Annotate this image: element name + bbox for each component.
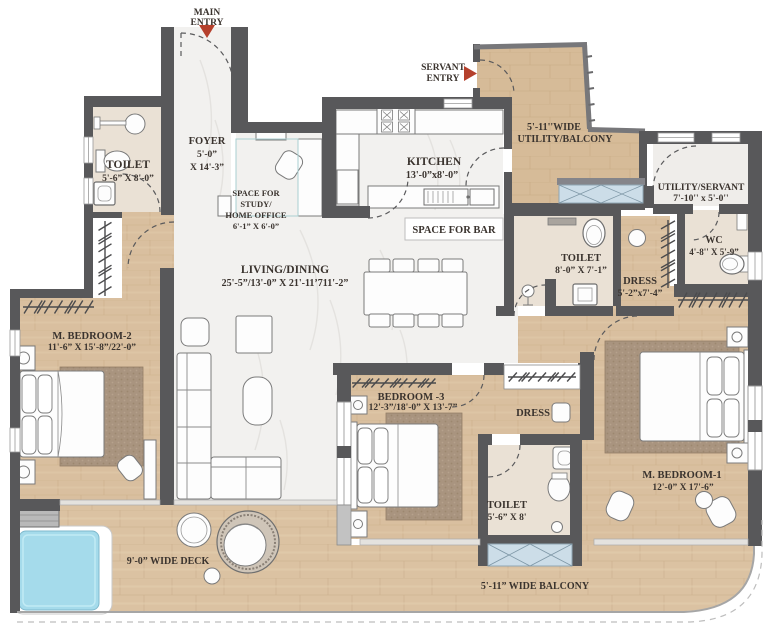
svg-text:5'-0”: 5'-0”	[197, 150, 217, 160]
svg-text:12'-0” X 17'-6”: 12'-0” X 17'-6”	[652, 483, 713, 493]
svg-text:HOME OFFICE: HOME OFFICE	[225, 210, 286, 220]
svg-text:5'-6” X 8'-0”: 5'-6” X 8'-0”	[102, 174, 154, 184]
svg-text:8'-0” X 7'-1”: 8'-0” X 7'-1”	[555, 266, 607, 276]
svg-text:TOILET: TOILET	[561, 253, 601, 264]
svg-text:DRESS: DRESS	[623, 276, 657, 287]
svg-text:MAIN: MAIN	[194, 8, 221, 18]
svg-text:5'-11''WIDE: 5'-11''WIDE	[527, 122, 581, 133]
svg-text:TOILET: TOILET	[106, 159, 150, 171]
svg-text:25'-5”/13'-0” X 21'-11’711'-2”: 25'-5”/13'-0” X 21'-11’711'-2”	[222, 278, 349, 289]
svg-text:ENTRY: ENTRY	[427, 74, 460, 84]
svg-text:5'-6” X 8': 5'-6” X 8'	[487, 513, 526, 523]
svg-text:SPACE FOR: SPACE FOR	[232, 188, 280, 198]
svg-text:TOILET: TOILET	[487, 500, 527, 511]
svg-text:12'-3”/18'-0” X 13'-7”: 12'-3”/18'-0” X 13'-7”	[369, 403, 458, 413]
svg-text:UTILITY/SERVANT: UTILITY/SERVANT	[658, 183, 745, 193]
svg-text:STUDY/: STUDY/	[240, 199, 272, 209]
svg-text:DRESS: DRESS	[516, 408, 550, 419]
svg-text:X 14'-3”: X 14'-3”	[190, 163, 224, 173]
svg-text:6'-1” X 6'-0”: 6'-1” X 6'-0”	[233, 221, 279, 231]
svg-text:KITCHEN: KITCHEN	[407, 156, 462, 168]
svg-text:LIVING/DINING: LIVING/DINING	[241, 264, 329, 276]
svg-text:FOYER: FOYER	[189, 136, 226, 147]
svg-text:7'-10'' x 5'-0'': 7'-10'' x 5'-0''	[673, 194, 728, 204]
svg-text:5'-2”x7'-4”: 5'-2”x7'-4”	[618, 289, 663, 299]
svg-text:UTILITY/BALCONY: UTILITY/BALCONY	[517, 134, 613, 145]
svg-text:13'-0”x8'-0”: 13'-0”x8'-0”	[406, 170, 458, 181]
svg-text:ENTRY: ENTRY	[191, 18, 224, 28]
svg-text:11'-6” X 15'-8”/22'-0”: 11'-6” X 15'-8”/22'-0”	[48, 343, 136, 353]
svg-text:SPACE FOR BAR: SPACE FOR BAR	[412, 225, 496, 236]
svg-text:M. BEDROOM-1: M. BEDROOM-1	[642, 470, 721, 481]
svg-text:4'-8'' X 5'-9”: 4'-8'' X 5'-9”	[689, 247, 739, 257]
svg-text:BEDROOM -3: BEDROOM -3	[378, 392, 445, 403]
svg-text:9'-0” WIDE DECK: 9'-0” WIDE DECK	[127, 556, 210, 567]
svg-text:WC: WC	[705, 235, 722, 246]
svg-text:SERVANT: SERVANT	[421, 63, 466, 73]
svg-text:M. BEDROOM-2: M. BEDROOM-2	[52, 331, 131, 342]
svg-text:5'-11” WIDE BALCONY: 5'-11” WIDE BALCONY	[481, 581, 590, 592]
